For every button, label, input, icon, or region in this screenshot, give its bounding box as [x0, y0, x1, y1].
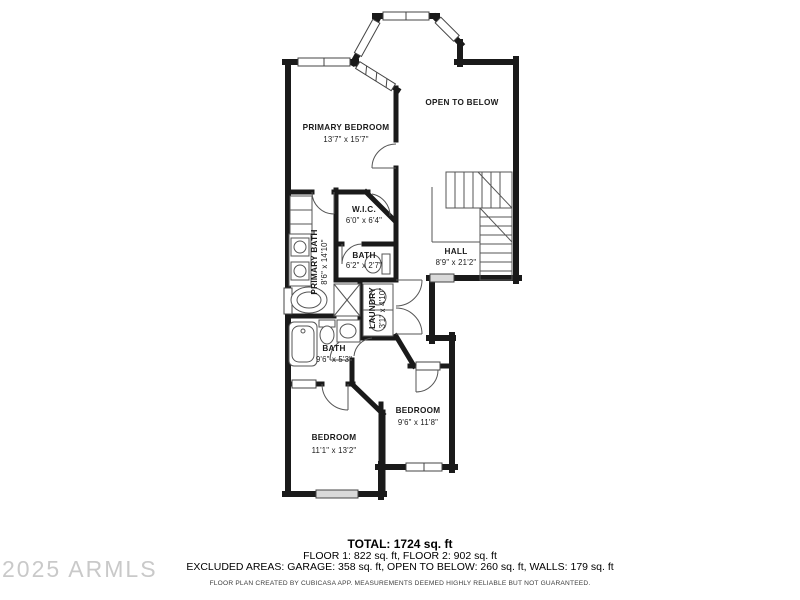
- bathtub-icon: [289, 322, 317, 366]
- room-label-wic: W.I.C.: [352, 205, 376, 214]
- closet-shelves-icon: [290, 196, 312, 240]
- room-label-primary-bath-group: PRIMARY BATH 8'6" x 14'10": [310, 229, 329, 294]
- vanity-sink-icon: [337, 320, 360, 342]
- window-hall-bottom: [430, 274, 454, 282]
- floor-plan-page: PRIMARY BEDROOM 13'7" x 15'7" OPEN TO BE…: [0, 0, 800, 600]
- room-dims-hall: 8'9" x 21'2": [436, 258, 477, 267]
- window-bay-left: [354, 19, 379, 56]
- opening-bedroom-right-top: [416, 362, 440, 370]
- room-dims-primary-bedroom: 13'7" x 15'7": [323, 135, 368, 144]
- room-label-open-to-below: OPEN TO BELOW: [425, 98, 498, 107]
- room-label-primary-bath: PRIMARY BATH: [310, 229, 319, 294]
- opening-bath-bedroom: [292, 380, 316, 388]
- room-dims-hall-bath: 9'6" x 5'3": [316, 355, 352, 364]
- window-bay-right: [435, 17, 459, 41]
- room-label-primary-bedroom: PRIMARY BEDROOM: [303, 123, 390, 132]
- toilet-icon-bath: [319, 320, 335, 344]
- room-label-bedroom-right: BEDROOM: [396, 406, 441, 415]
- room-label-laundry-group: LAUNDRY 3'1" x 4'10": [368, 287, 387, 329]
- room-dims-bedroom-right: 9'6" x 11'8": [398, 418, 438, 427]
- room-dims-laundry: 3'1" x 4'10": [378, 288, 387, 329]
- room-label-bedroom-left: BEDROOM: [312, 433, 357, 442]
- door-laundry-lower: [396, 308, 422, 334]
- room-dims-primary-bath: 8'6" x 14'10": [320, 239, 329, 284]
- room-dims-wic: 6'0" x 6'4": [346, 216, 382, 225]
- total-area-text: TOTAL: 1724 sq. ft: [0, 538, 800, 550]
- armls-watermark: 2025 ARMLS: [2, 556, 158, 583]
- door-primary-suite-hall: [312, 192, 334, 214]
- room-label-hall: HALL: [444, 247, 467, 256]
- room-dims-bedroom-left: 11'1" x 13'2": [312, 446, 357, 455]
- room-label-laundry: LAUNDRY: [368, 287, 377, 329]
- shower-icon: [334, 284, 360, 316]
- door-bedroom-left: [322, 384, 348, 410]
- double-vanity-icon: [289, 234, 311, 286]
- window-bedroom-left-bottom: [316, 490, 358, 498]
- room-label-wc-bath: BATH: [352, 251, 375, 260]
- room-dims-wc-bath: 6'2" x 2'7": [346, 261, 382, 270]
- room-label-hall-bath: BATH: [322, 344, 345, 353]
- floor-plan-canvas: PRIMARY BEDROOM 13'7" x 15'7" OPEN TO BE…: [0, 0, 800, 600]
- door-laundry-upper: [396, 280, 422, 306]
- door-primary-bedroom: [372, 144, 396, 168]
- oval-bathtub-icon: [291, 287, 327, 313]
- window-bedroom-bay-diag: [356, 62, 396, 91]
